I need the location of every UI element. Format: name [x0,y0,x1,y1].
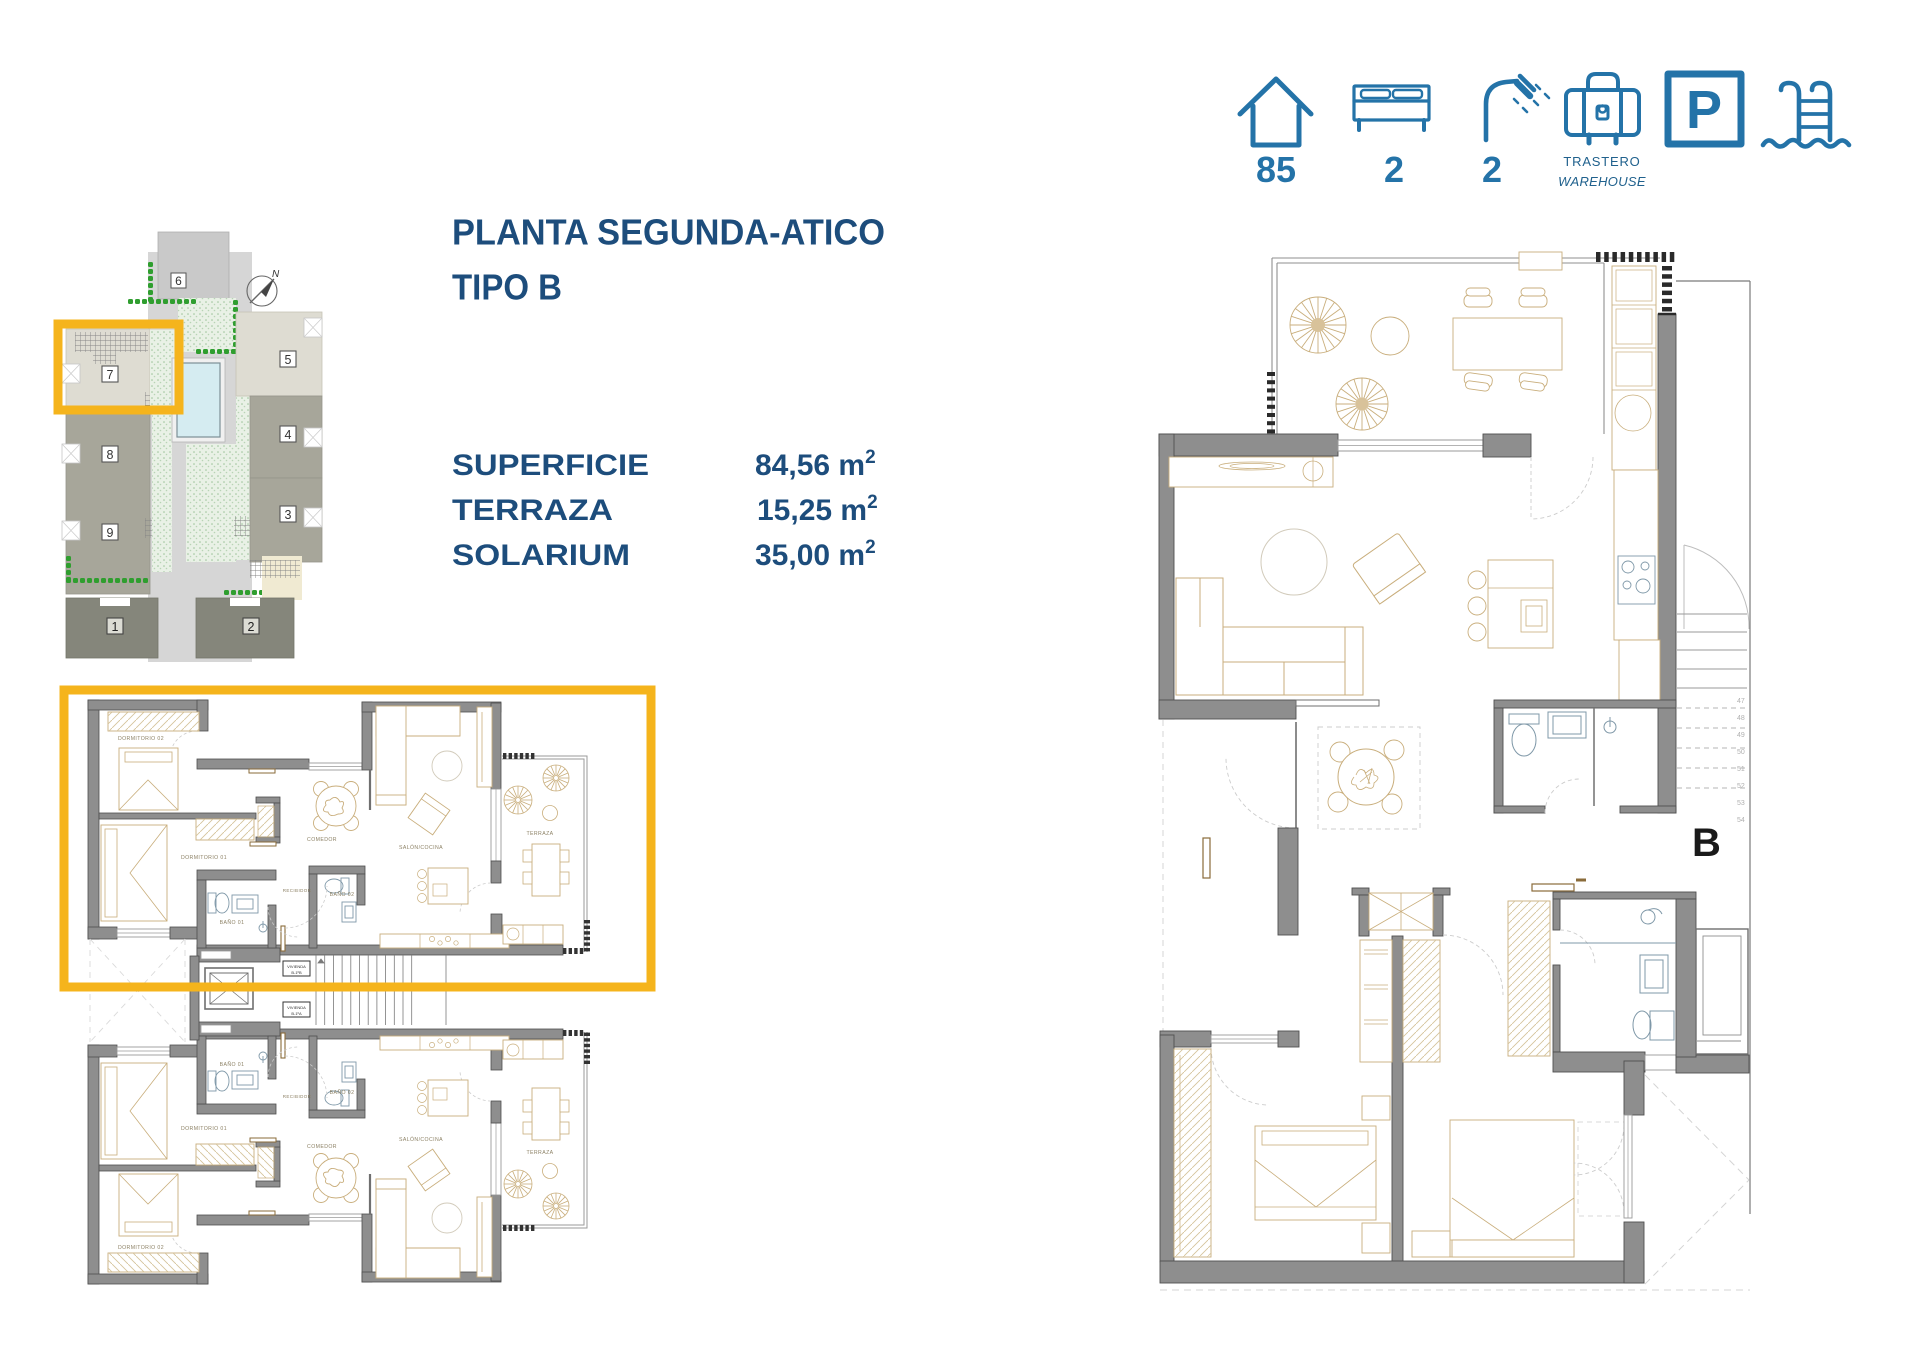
svg-text:SALÓN/COCINA: SALÓN/COCINA [399,1136,443,1143]
svg-text:N: N [272,269,280,280]
svg-text:52: 52 [1737,783,1745,790]
svg-text:BAÑO 01: BAÑO 01 [220,919,245,926]
svg-text:SUPERFICIE: SUPERFICIE [452,449,649,482]
svg-text:TIPO B: TIPO B [452,267,562,308]
svg-text:49: 49 [1737,732,1745,739]
svg-text:SOLARIUM: SOLARIUM [452,539,630,572]
svg-text:TERRAZA: TERRAZA [526,1150,553,1156]
svg-text:COMEDOR: COMEDOR [307,837,337,843]
svg-text:BAÑO 02: BAÑO 02 [330,891,355,898]
svg-text:5: 5 [285,353,292,367]
svg-text:2: 2 [248,620,255,634]
svg-text:4: 4 [285,428,292,442]
svg-text:TERRAZA: TERRAZA [526,831,553,837]
svg-text:3: 3 [285,508,292,522]
svg-text:VIVIENDA: VIVIENDA [287,964,306,969]
svg-text:51: 51 [1737,766,1745,773]
svg-text:COMEDOR: COMEDOR [307,1144,337,1150]
svg-text:P: P [1686,80,1722,140]
svg-text:DORMITORIO 01: DORMITORIO 01 [181,855,227,861]
svg-text:B-1ºB: B-1ºB [291,970,302,975]
svg-text:B: B [1692,821,1721,865]
svg-text:WAREHOUSE: WAREHOUSE [1558,174,1646,189]
svg-text:85: 85 [1256,149,1296,190]
svg-text:1: 1 [112,620,119,634]
svg-text:35,00 m2: 35,00 m2 [755,537,876,572]
svg-text:BAÑO 01: BAÑO 01 [220,1061,245,1068]
svg-text:RECIBIDOR: RECIBIDOR [283,888,312,893]
svg-text:8: 8 [107,448,114,462]
svg-text:15,25 m2: 15,25 m2 [757,492,878,527]
svg-text:7: 7 [107,368,114,382]
svg-text:2: 2 [1384,149,1404,190]
svg-text:B-1ºA: B-1ºA [291,1011,302,1016]
svg-text:84,56 m2: 84,56 m2 [755,447,876,482]
svg-text:47: 47 [1737,698,1745,705]
svg-text:DORMITORIO 02: DORMITORIO 02 [118,1245,164,1251]
svg-text:48: 48 [1737,715,1745,722]
svg-text:50: 50 [1737,749,1745,756]
svg-text:SALÓN/COCINA: SALÓN/COCINA [399,844,443,851]
svg-text:TERRAZA: TERRAZA [452,494,613,527]
svg-text:9: 9 [107,526,114,540]
svg-text:PLANTA SEGUNDA-ATICO: PLANTA SEGUNDA-ATICO [452,212,885,253]
svg-text:TRASTERO: TRASTERO [1563,154,1640,169]
svg-text:6: 6 [175,274,182,288]
svg-text:RECIBIDOR: RECIBIDOR [283,1094,312,1099]
svg-text:DORMITORIO 02: DORMITORIO 02 [118,736,164,742]
svg-text:BAÑO 02: BAÑO 02 [330,1089,355,1096]
svg-text:54: 54 [1737,817,1745,824]
svg-text:53: 53 [1737,800,1745,807]
svg-text:2: 2 [1482,149,1502,190]
svg-text:DORMITORIO 01: DORMITORIO 01 [181,1126,227,1132]
svg-text:VIVIENDA: VIVIENDA [287,1005,306,1010]
